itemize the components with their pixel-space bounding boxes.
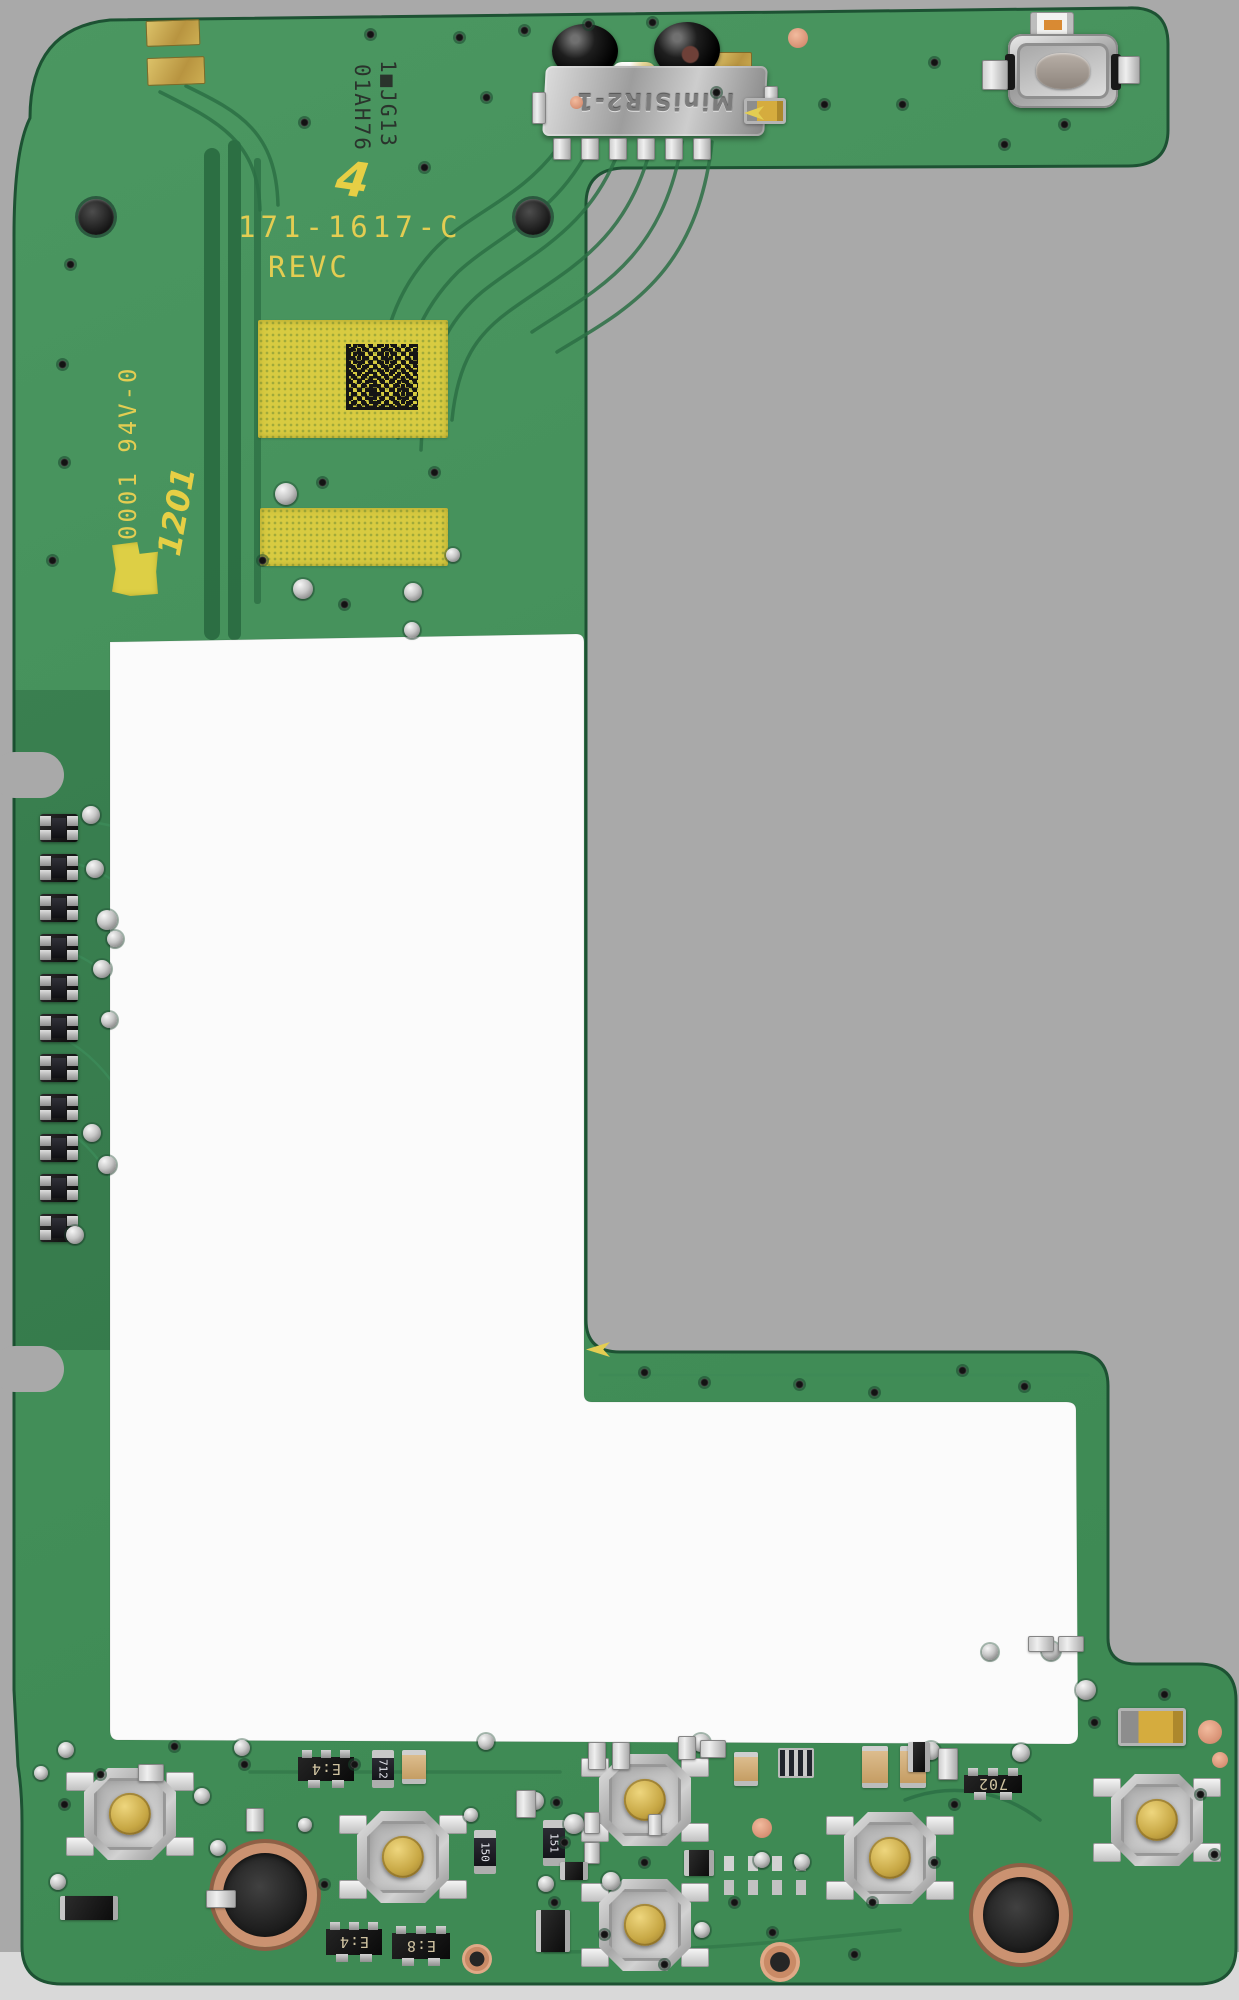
smd-capacitor [938, 1748, 958, 1780]
smd-capacitor [553, 138, 571, 160]
solder-ball [298, 1818, 312, 1832]
masked-cutout [110, 634, 1078, 1744]
via-dot [1020, 1382, 1029, 1391]
via-dot [868, 1898, 877, 1907]
solder-ball [210, 1840, 226, 1856]
smd-capacitor [1028, 1636, 1054, 1652]
ic-marking: E:8 [392, 1933, 450, 1959]
solder-ball [97, 910, 117, 930]
via-dot [870, 1388, 879, 1397]
via-dot [58, 360, 67, 369]
board-artwork [0, 0, 1239, 2000]
smd-capacitor [1058, 1636, 1084, 1652]
chip-resistor: 712 [372, 1750, 394, 1788]
solder-ball [602, 1872, 620, 1890]
datamatrix-code [346, 344, 418, 410]
gold-label-blank [260, 508, 448, 566]
via-dot [795, 1380, 804, 1389]
smd-capacitor [693, 138, 711, 160]
dual-diode-component [40, 1054, 78, 1082]
smd-capacitor [516, 1790, 536, 1818]
solder-ball [101, 1012, 117, 1028]
smd-capacitor [584, 1812, 600, 1834]
smd-capacitor [648, 1814, 662, 1836]
smd-chip [908, 1742, 930, 1772]
solder-ball [404, 622, 420, 638]
via-dot [430, 468, 439, 477]
via-dot [482, 93, 491, 102]
via-dot [366, 30, 375, 39]
via-dot [640, 1858, 649, 1867]
tact-switch [1111, 1774, 1203, 1866]
via-dot [96, 1770, 105, 1779]
dual-diode-component [40, 1174, 78, 1202]
solder-ball [446, 548, 460, 562]
via-dot [768, 1928, 777, 1937]
via-dot [560, 1838, 569, 1847]
edge-notch [0, 752, 64, 798]
solder-pad [1118, 56, 1140, 84]
resistor-marking: 150 [479, 1842, 492, 1862]
via-dot [700, 1378, 709, 1387]
laser-code-line1: 1■JG13 [376, 60, 400, 148]
solder-ball [564, 1814, 584, 1834]
smd-capacitor [581, 138, 599, 160]
gold-pad [146, 19, 201, 47]
via-dot [170, 1742, 179, 1751]
revision-marking: REVC [268, 250, 350, 284]
solder-ball [464, 1808, 478, 1822]
solder-ball [34, 1766, 48, 1780]
via-dot [600, 1930, 609, 1939]
via-dot [640, 1368, 649, 1377]
ul-rating-text: 0001 94V-0 [114, 366, 142, 541]
via-dot [350, 1760, 359, 1769]
solder-ball [194, 1788, 210, 1804]
via-dot [958, 1366, 967, 1375]
resistor-network [778, 1748, 814, 1778]
solder-ball [754, 1852, 770, 1868]
tact-switch [357, 1811, 449, 1903]
tantalum-capacitor [402, 1750, 426, 1784]
resistor-marking: 151 [548, 1833, 561, 1853]
smd-capacitor [206, 1890, 236, 1908]
via-dot [1060, 120, 1069, 129]
solder-ball [1012, 1744, 1030, 1762]
ic-marking: 702 [964, 1775, 1022, 1793]
smd-chip [60, 1896, 118, 1920]
ic-sot89: E:4 [298, 1750, 354, 1788]
smd-capacitor [609, 138, 627, 160]
copper-via [570, 96, 583, 109]
via-dot [1090, 1718, 1099, 1727]
solder-ball [234, 1740, 250, 1756]
via-dot [318, 478, 327, 487]
solder-ball [1076, 1680, 1096, 1700]
solder-ball [694, 1922, 710, 1938]
solder-ball [93, 960, 111, 978]
ic-marking: E:4 [298, 1757, 354, 1781]
solder-ball [83, 1124, 101, 1142]
chip-resistor: 150 [474, 1830, 496, 1874]
plated-hole [760, 1942, 800, 1982]
solder-ball [275, 483, 297, 505]
via-dot [420, 163, 429, 172]
solder-ball [478, 1734, 494, 1750]
copper-via [752, 1818, 772, 1838]
gold-pad [147, 56, 206, 86]
solder-ball [50, 1874, 66, 1890]
screw-hole [78, 199, 114, 235]
ic-sot23: 702 [964, 1768, 1022, 1800]
smd-capacitor [637, 138, 655, 160]
ic-sot23: E:4 [326, 1922, 382, 1962]
dual-diode-component [40, 974, 78, 1002]
side-tact-switch [1008, 34, 1118, 108]
ic-sot23: E:8 [392, 1926, 450, 1966]
smd-capacitor [584, 1842, 600, 1864]
via-dot [60, 1800, 69, 1809]
solder-ball [107, 931, 123, 947]
ic-marking: E:4 [326, 1929, 382, 1955]
solder-pad [982, 60, 1008, 90]
solder-ball [66, 1226, 84, 1244]
dual-diode-component [40, 1094, 78, 1122]
tact-switch [844, 1812, 936, 1904]
dual-diode-component [40, 814, 78, 842]
edge-notch [0, 1346, 64, 1392]
via-dot [950, 1800, 959, 1809]
via-dot [648, 18, 657, 27]
via-dot [584, 20, 593, 29]
via-dot [730, 1898, 739, 1907]
tantalum-capacitor [734, 1752, 758, 1786]
smd-capacitor [612, 1742, 630, 1770]
smd-chip [560, 1862, 588, 1880]
copper-via [1198, 1720, 1222, 1744]
solder-ball [404, 583, 422, 601]
solder-ball [538, 1876, 554, 1892]
via-dot [660, 1960, 669, 1969]
copper-via [788, 28, 808, 48]
dual-diode-component [40, 894, 78, 922]
smd-chip [684, 1850, 714, 1876]
via-dot [300, 118, 309, 127]
laser-code-line2: 01AH76 [350, 64, 374, 152]
via-dot [820, 100, 829, 109]
dual-diode-component [40, 1014, 78, 1042]
smd-capacitor [138, 1764, 164, 1782]
tact-switch [599, 1879, 691, 1971]
via-dot [320, 1880, 329, 1889]
smd-chip [536, 1910, 570, 1952]
dual-diode-component [40, 934, 78, 962]
plated-hole [462, 1944, 492, 1974]
via-dot [850, 1950, 859, 1959]
tantalum-capacitor [862, 1746, 888, 1788]
via-dot [1210, 1850, 1219, 1859]
smd-capacitor [665, 138, 683, 160]
contact-disc [973, 1867, 1069, 1963]
via-dot [550, 1898, 559, 1907]
side-switch-actuator [1036, 53, 1090, 89]
led-component [1118, 1708, 1186, 1746]
via-dot [48, 556, 57, 565]
via-dot [898, 100, 907, 109]
via-dot [552, 1798, 561, 1807]
via-dot [1160, 1690, 1169, 1699]
solder-ball [98, 1156, 116, 1174]
dual-diode-component [40, 1134, 78, 1162]
via-dot [240, 1760, 249, 1769]
ir-shield-tab [532, 92, 546, 124]
solder-ball [293, 579, 313, 599]
via-dot [712, 88, 721, 97]
dual-diode-component [40, 854, 78, 882]
via-dot [258, 556, 267, 565]
via-dot [60, 458, 69, 467]
via-dot [66, 260, 75, 269]
pcb-photo: 171-1617-C REVC 1■JG13 01AH76 4 0001 94V… [0, 0, 1239, 2000]
solder-ball [794, 1854, 810, 1870]
smd-capacitor [678, 1736, 696, 1760]
via-dot [340, 600, 349, 609]
smd-capacitor [246, 1808, 264, 1832]
screw-hole [515, 199, 551, 235]
solder-ball [82, 806, 100, 824]
copper-via [1212, 1752, 1228, 1768]
via-dot [455, 33, 464, 42]
resistor-marking: 712 [377, 1759, 390, 1779]
via-dot [930, 1858, 939, 1867]
smd-capacitor [588, 1742, 606, 1770]
via-dot [1196, 1790, 1205, 1799]
via-dot [1000, 140, 1009, 149]
solder-ball [982, 1644, 998, 1660]
part-number: 171-1617-C [238, 210, 463, 244]
via-dot [930, 58, 939, 67]
solder-ball [58, 1742, 74, 1758]
solder-ball [86, 860, 104, 878]
smd-capacitor [700, 1740, 726, 1758]
via-dot [520, 26, 529, 35]
